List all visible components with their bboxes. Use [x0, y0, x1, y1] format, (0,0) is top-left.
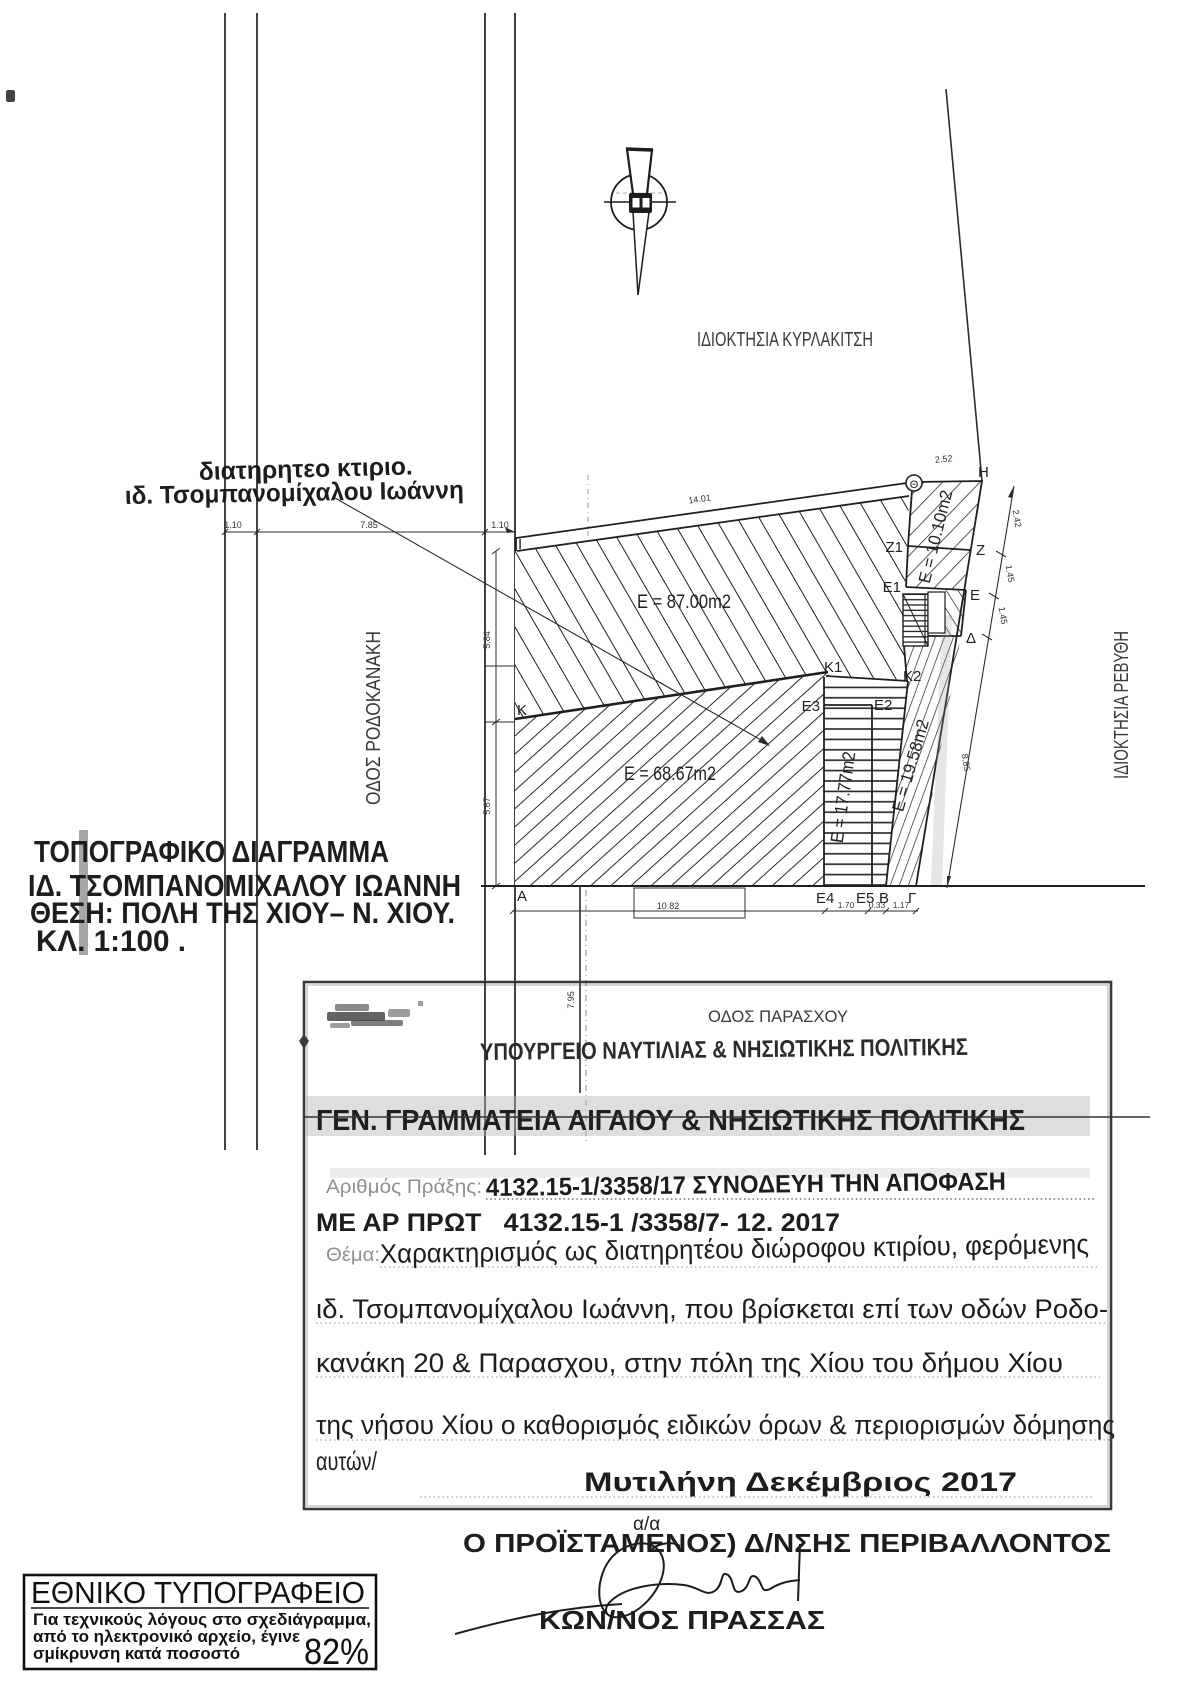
svg-text:7.85: 7.85 — [360, 520, 378, 530]
svg-text:K2: K2 — [903, 668, 921, 685]
svg-text:Ο ΠΡΟΪΣΤΑΜΕΝΟΣ) Δ/ΝΣΗΣ ΠΕΡΙΒΑΛ: Ο ΠΡΟΪΣΤΑΜΕΝΟΣ) Δ/ΝΣΗΣ ΠΕΡΙΒΑΛΛΟΝΤΟΣ — [463, 1528, 1111, 1558]
svg-text:1.70: 1.70 — [838, 900, 855, 910]
svg-text:1.17: 1.17 — [893, 900, 910, 910]
svg-text:ΚΩΝ/ΝΟΣ ΠΡΑΣΣΑΣ: ΚΩΝ/ΝΟΣ ΠΡΑΣΣΑΣ — [539, 1605, 825, 1635]
svg-text:αυτών/: αυτών/ — [316, 1446, 378, 1476]
svg-text:K1: K1 — [824, 659, 842, 676]
svg-text:5.84: 5.84 — [482, 631, 492, 649]
svg-text:σμίκρυνση κατά ποσοστό: σμίκρυνση κατά ποσοστό — [33, 1644, 240, 1663]
svg-text:5.67: 5.67 — [482, 797, 492, 815]
svg-text:ΕΘΝΙΚΟ ΤΥΠΟΓΡΑΦΕΙΟ: ΕΘΝΙΚΟ ΤΥΠΟΓΡΑΦΕΙΟ — [31, 1575, 365, 1610]
svg-text:A: A — [517, 888, 527, 905]
svg-text:E1: E1 — [883, 579, 901, 596]
svg-text:I: I — [518, 536, 522, 553]
svg-text:ΙΔΙΟΚΤΗΣΙΑ ΚΥΡΛΑΚΙΤΣΗ: ΙΔΙΟΚΤΗΣΙΑ ΚΥΡΛΑΚΙΤΣΗ — [697, 329, 873, 351]
svg-text:2.52: 2.52 — [934, 453, 952, 465]
svg-text:Μυτιλήνη Δεκέμβριος 2017: Μυτιλήνη Δεκέμβριος 2017 — [584, 1467, 1017, 1497]
svg-text:ΟΔΟΣ ΡΟΔΟΚΑΝΑΚΗ: ΟΔΟΣ ΡΟΔΟΚΑΝΑΚΗ — [363, 631, 385, 805]
svg-text:E3: E3 — [802, 698, 820, 715]
svg-text:ιδ. Τσομπανομίχαλου Ιωάννη: ιδ. Τσομπανομίχαλου Ιωάννη — [125, 476, 464, 510]
svg-text:7.95: 7.95 — [566, 991, 576, 1009]
svg-text:Z1: Z1 — [885, 539, 903, 556]
svg-text:E2: E2 — [874, 697, 892, 714]
svg-text:ΓΕΝ. ΓΡΑΜΜΑΤΕΙΑ ΑΙΓΑΙΟΥ & ΝΗΣΙ: ΓΕΝ. ΓΡΑΜΜΑΤΕΙΑ ΑΙΓΑΙΟΥ & ΝΗΣΙΩΤΙΚΗΣ ΠΟΛ… — [316, 1105, 1025, 1137]
svg-text:ΥΠΟΥΡΓΕΙΟ ΝΑΥΤΙΛΙΑΣ & ΝΗΣΙΩΤΙΚ: ΥΠΟΥΡΓΕΙΟ ΝΑΥΤΙΛΙΑΣ & ΝΗΣΙΩΤΙΚΗΣ ΠΟΛΙΤΙΚ… — [480, 1034, 968, 1066]
svg-text:82%: 82% — [304, 1631, 369, 1672]
svg-text:ΤΟΠΟΓΡΑΦΙΚΟ ΔΙΑΓΡΑΜΜΑ: ΤΟΠΟΓΡΑΦΙΚΟ ΔΙΑΓΡΑΜΜΑ — [34, 834, 389, 869]
svg-text:E: E — [970, 587, 980, 604]
svg-text:κανάκη 20 & Παρασχου, στην πόλ: κανάκη 20 & Παρασχου, στην πόλη της Χίου… — [316, 1348, 1063, 1378]
svg-text:0.33: 0.33 — [869, 900, 886, 910]
svg-text:10.82: 10.82 — [657, 901, 680, 911]
svg-text:E = 68.67m2: E = 68.67m2 — [624, 764, 716, 785]
svg-text:H: H — [978, 464, 989, 481]
svg-text:Αριθμός Πράξης:: Αριθμός Πράξης: — [326, 1177, 482, 1198]
svg-text:Δ: Δ — [966, 630, 976, 647]
svg-text:της νήσου Χίου ο καθορισμός ει: της νήσου Χίου ο καθορισμός ειδικών όρων… — [316, 1410, 1115, 1440]
svg-text:ΙΔΙΟΚΤΗΣΙΑ ΡΕΒΥΘΗ: ΙΔΙΟΚΤΗΣΙΑ ΡΕΒΥΘΗ — [1111, 631, 1133, 779]
svg-text:Z: Z — [976, 542, 985, 559]
svg-text:K: K — [517, 702, 527, 719]
svg-text:E = 87.00m2: E = 87.00m2 — [637, 592, 731, 613]
svg-text:Θέμα:: Θέμα: — [326, 1245, 380, 1266]
svg-text:Θ: Θ — [910, 479, 919, 491]
svg-text:ΟΔΟΣ ΠΑΡΑΣΧΟΥ: ΟΔΟΣ ΠΑΡΑΣΧΟΥ — [708, 1007, 848, 1026]
svg-text:ΚΛ. 1:100 .: ΚΛ. 1:100 . — [36, 925, 186, 958]
svg-text:E4: E4 — [816, 890, 834, 907]
svg-text:1.10: 1.10 — [224, 520, 242, 530]
svg-text:ιδ. Τσομπανομίχαλου Ιωάννη, πο: ιδ. Τσομπανομίχαλου Ιωάννη, που βρίσκετα… — [316, 1294, 1108, 1324]
svg-text:1.10: 1.10 — [491, 520, 509, 530]
